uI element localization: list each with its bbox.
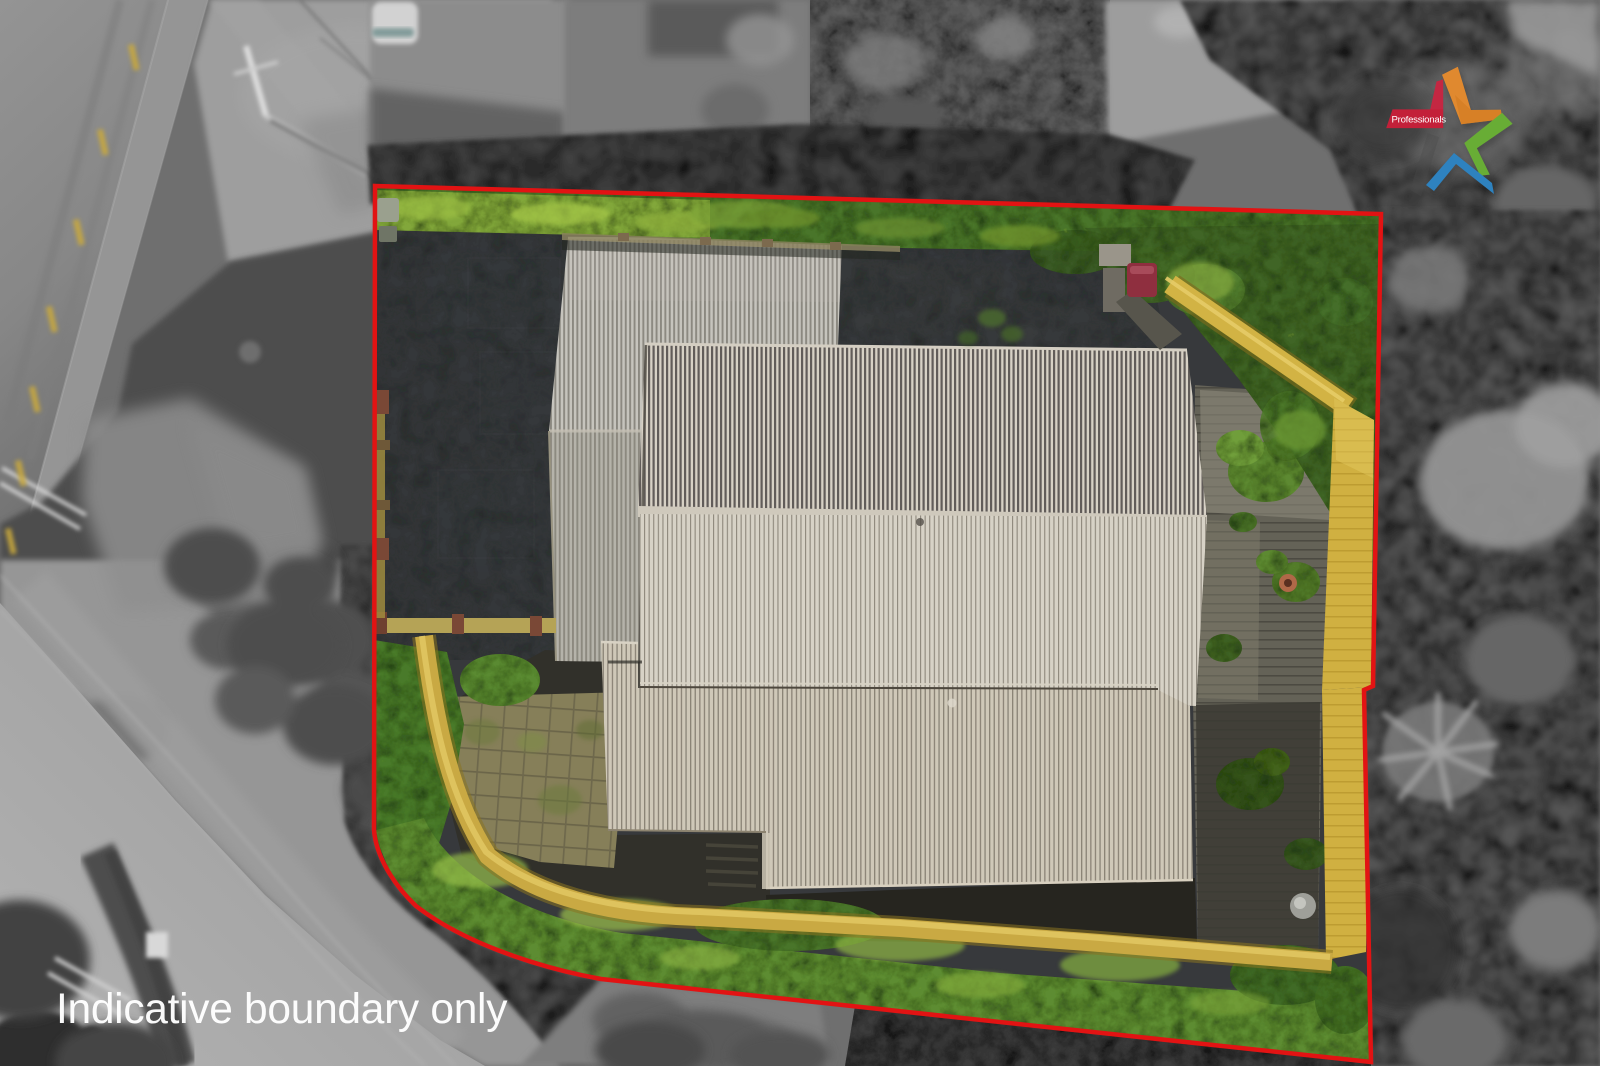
svg-text:Professionals: Professionals [1392,115,1447,126]
svg-text:Indicative boundary only: Indicative boundary only [56,986,508,1033]
